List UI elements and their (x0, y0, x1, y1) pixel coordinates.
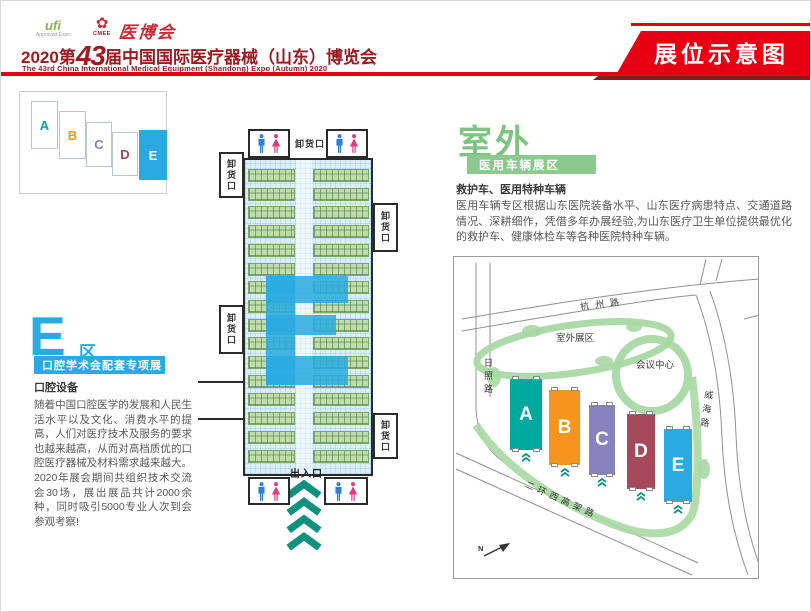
ufi-logo: ufi Approved Expo (31, 19, 75, 38)
booth-block (313, 450, 369, 463)
site-map: ABCDE 杭州路 日照路 威海路 二环西高架路 室外展区 会议中心 N (453, 256, 759, 579)
outdoor-banner: 医用车辆展区 (467, 155, 596, 174)
wall-stub (198, 381, 244, 383)
restroom-top-left (248, 129, 290, 158)
hall-e-overlay-bottom-bar (266, 356, 348, 385)
booth-block (313, 412, 369, 425)
map-hall-B: B (549, 390, 580, 465)
female-icon (349, 134, 359, 153)
thumb-hall-E: E (139, 130, 167, 180)
map-hall-letter: A (510, 379, 542, 450)
map-hall-A: A (510, 379, 542, 450)
restroom-bottom-right (324, 477, 368, 505)
entrance-tick (629, 411, 636, 415)
booth-block (313, 225, 369, 238)
hall-e-overlay-middle-bar (266, 315, 336, 335)
booth-block (248, 393, 295, 406)
page-tag-banner: 展位示意图 (617, 31, 811, 73)
entrance-exit-label: 出入口 (290, 465, 323, 480)
brochure-page: ufi Approved Expo ✿ CMEE 医博会 2020第43届中国国… (0, 0, 811, 612)
chevron-up-icon (520, 452, 532, 462)
map-hall-E: E (664, 429, 692, 502)
entrance-tick (591, 402, 598, 406)
booth-block (248, 450, 295, 463)
map-hall-letter: B (549, 390, 580, 465)
thumb-hall-D: D (112, 132, 138, 176)
conference-center-label: 会议中心 (636, 357, 674, 371)
unload-gate-text: 卸货口 (379, 211, 392, 244)
entrance-tick (551, 463, 558, 467)
hall-e-banner: 口腔学术会配套专项展 (34, 356, 165, 374)
booth-block (248, 188, 295, 201)
entrance-tick (551, 387, 558, 391)
male-icon (335, 134, 344, 153)
map-hall-letter: E (664, 429, 692, 502)
wall-stub (198, 418, 244, 420)
flower-logo-icon: ✿ (87, 16, 117, 31)
booth-block (248, 431, 295, 444)
thumb-hall-C: C (86, 122, 112, 167)
floorplan: 卸货口 卸货口 卸货口 卸货口 卸货口 出入口 (206, 106, 438, 568)
exhibition-hall (243, 158, 373, 476)
hall-e-big-letter: E (29, 316, 66, 356)
female-icon (348, 482, 358, 501)
thumb-hall-A: A (31, 101, 58, 149)
outdoor-area-label: 室外展区 (556, 330, 594, 344)
cmee-logo-text: CMEE (87, 32, 117, 38)
unload-gate-text: 卸货口 (225, 313, 238, 346)
chevron-up-icon (596, 477, 608, 487)
thumb-hall-B: B (59, 111, 86, 159)
overview-thumbnail: ABCDE (19, 91, 167, 194)
booth-block (248, 244, 295, 257)
booth-block (248, 412, 295, 425)
booth-block (313, 431, 369, 444)
entrance-tick (533, 376, 540, 380)
entrance-tick (646, 411, 653, 415)
compass: N (478, 538, 518, 562)
map-hall-letter: C (589, 405, 615, 475)
unload-gate-label-top: 卸货口 (295, 137, 325, 150)
entrance-tick (512, 448, 519, 452)
unload-gate-left-1: 卸货口 (219, 152, 244, 198)
booth-block (248, 206, 295, 219)
entrance-tick (571, 463, 578, 467)
female-icon (271, 134, 281, 153)
entrance-tick (646, 487, 653, 491)
outdoor-heading: 救护车、医用特种车辆 (456, 181, 566, 197)
unload-gate-left-2: 卸货口 (219, 305, 244, 354)
unload-gate-text: 卸货口 (225, 159, 238, 192)
entrance-tick (683, 500, 690, 504)
chevron-up-icon (559, 467, 571, 477)
chevron-up-icon (672, 504, 684, 514)
male-icon (257, 482, 266, 501)
male-icon (334, 482, 343, 501)
entrance-chevrons-icon (284, 480, 324, 560)
entrance-tick (512, 376, 519, 380)
map-hall-D: D (627, 414, 655, 489)
booth-block (313, 169, 369, 182)
entrance-tick (666, 426, 673, 430)
booth-block (313, 393, 369, 406)
booth-block (313, 206, 369, 219)
unload-gate-text: 卸货口 (379, 420, 392, 453)
cmee-logo: ✿ CMEE (87, 16, 117, 38)
booth-block (248, 263, 295, 276)
entrance-tick (606, 402, 613, 406)
unload-gate-right-1: 卸货口 (373, 203, 398, 252)
top-right-red-line (631, 23, 811, 26)
entrance-tick (533, 448, 540, 452)
entrance-tick (683, 426, 690, 430)
entrance-tick (571, 387, 578, 391)
male-icon (257, 134, 266, 153)
booth-block (313, 188, 369, 201)
female-icon (271, 482, 281, 501)
unload-gate-right-2: 卸货口 (373, 413, 398, 459)
booth-block (313, 244, 369, 257)
hall-e-heading: 口腔设备 (34, 379, 78, 395)
booth-block (248, 169, 295, 182)
booth-block (313, 263, 369, 276)
outdoor-description: 医用车辆专区根据山东医院装备水平、山东医疗病患特点、交通道路情况、深耕细作，凭借… (456, 199, 792, 246)
ufi-logo-text: ufi (31, 19, 75, 32)
compass-north-label: N (478, 544, 483, 553)
ufi-logo-subtext: Approved Expo (31, 33, 75, 38)
restroom-top-right (326, 129, 368, 158)
chevron-up-icon (635, 491, 647, 501)
restroom-bottom-left (248, 477, 290, 505)
map-hall-letter: D (627, 414, 655, 489)
banner-shadow-rule (593, 76, 811, 80)
booth-block (313, 337, 369, 350)
road-label-rizhao: 日照路 (482, 358, 495, 397)
map-hall-C: C (589, 405, 615, 475)
hall-e-description: 随着中国口腔医学的发展和人民生活水平以及文化、消费水平的提高，人们对医疗技术及服… (34, 398, 192, 529)
booth-block (248, 225, 295, 238)
